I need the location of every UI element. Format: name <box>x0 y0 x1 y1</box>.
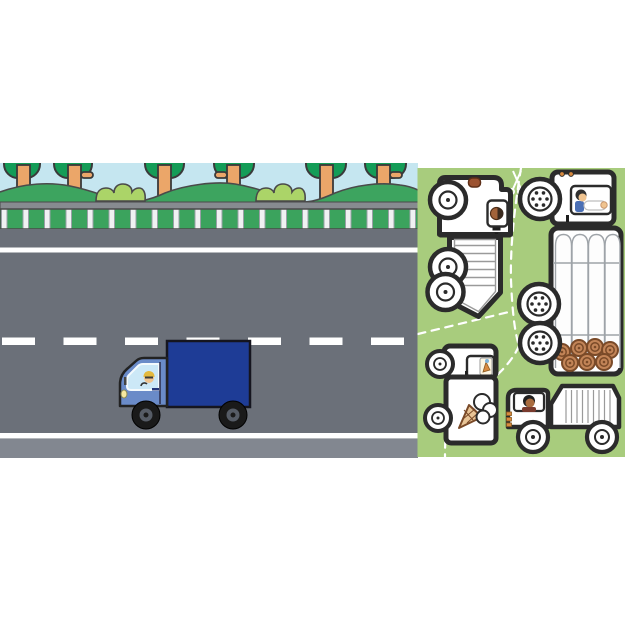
truck-mirror <box>124 377 127 385</box>
front-reflectors <box>507 412 512 427</box>
truck-door-handle <box>152 388 159 391</box>
tipper-wheel <box>428 274 464 310</box>
tipper-door-handle <box>493 228 501 231</box>
highway-scene <box>0 136 418 458</box>
roof-vent <box>458 344 467 348</box>
dump-wheel <box>587 422 617 452</box>
dump-wheel <box>518 422 548 452</box>
dump-bed <box>551 386 619 427</box>
log-truck-wheel <box>520 179 560 219</box>
truck-front-wheel <box>132 401 160 429</box>
log-truck-wheel <box>520 323 560 363</box>
guardrail <box>0 209 418 229</box>
shoulder <box>0 439 418 458</box>
truck-rear-wheel <box>219 401 247 429</box>
log-truck-wheel <box>519 284 559 324</box>
tipper-driver <box>491 208 504 220</box>
ice-cream-wheel <box>425 405 451 431</box>
dump-driver <box>522 395 536 412</box>
headlight <box>121 390 127 398</box>
tipper-roof-handle <box>469 178 481 187</box>
truck-box <box>167 341 250 407</box>
marker-light <box>569 172 574 177</box>
illustration-page <box>0 0 625 625</box>
log-ends <box>554 339 618 371</box>
lane-line-bottom <box>0 433 418 439</box>
ice-cream-wheel <box>427 351 453 377</box>
sticker-panel <box>418 168 625 457</box>
lane-line-top <box>0 248 418 253</box>
log-truck-door-handle <box>566 215 569 222</box>
window-sticker <box>480 358 492 375</box>
marker-light <box>560 172 565 177</box>
tipper-wheel <box>430 182 466 218</box>
